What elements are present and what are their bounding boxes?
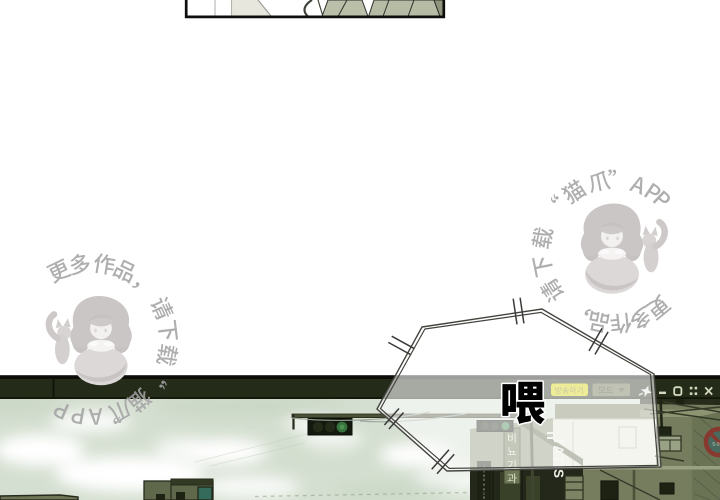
svg-text:5-9: 5-9: [712, 442, 719, 448]
